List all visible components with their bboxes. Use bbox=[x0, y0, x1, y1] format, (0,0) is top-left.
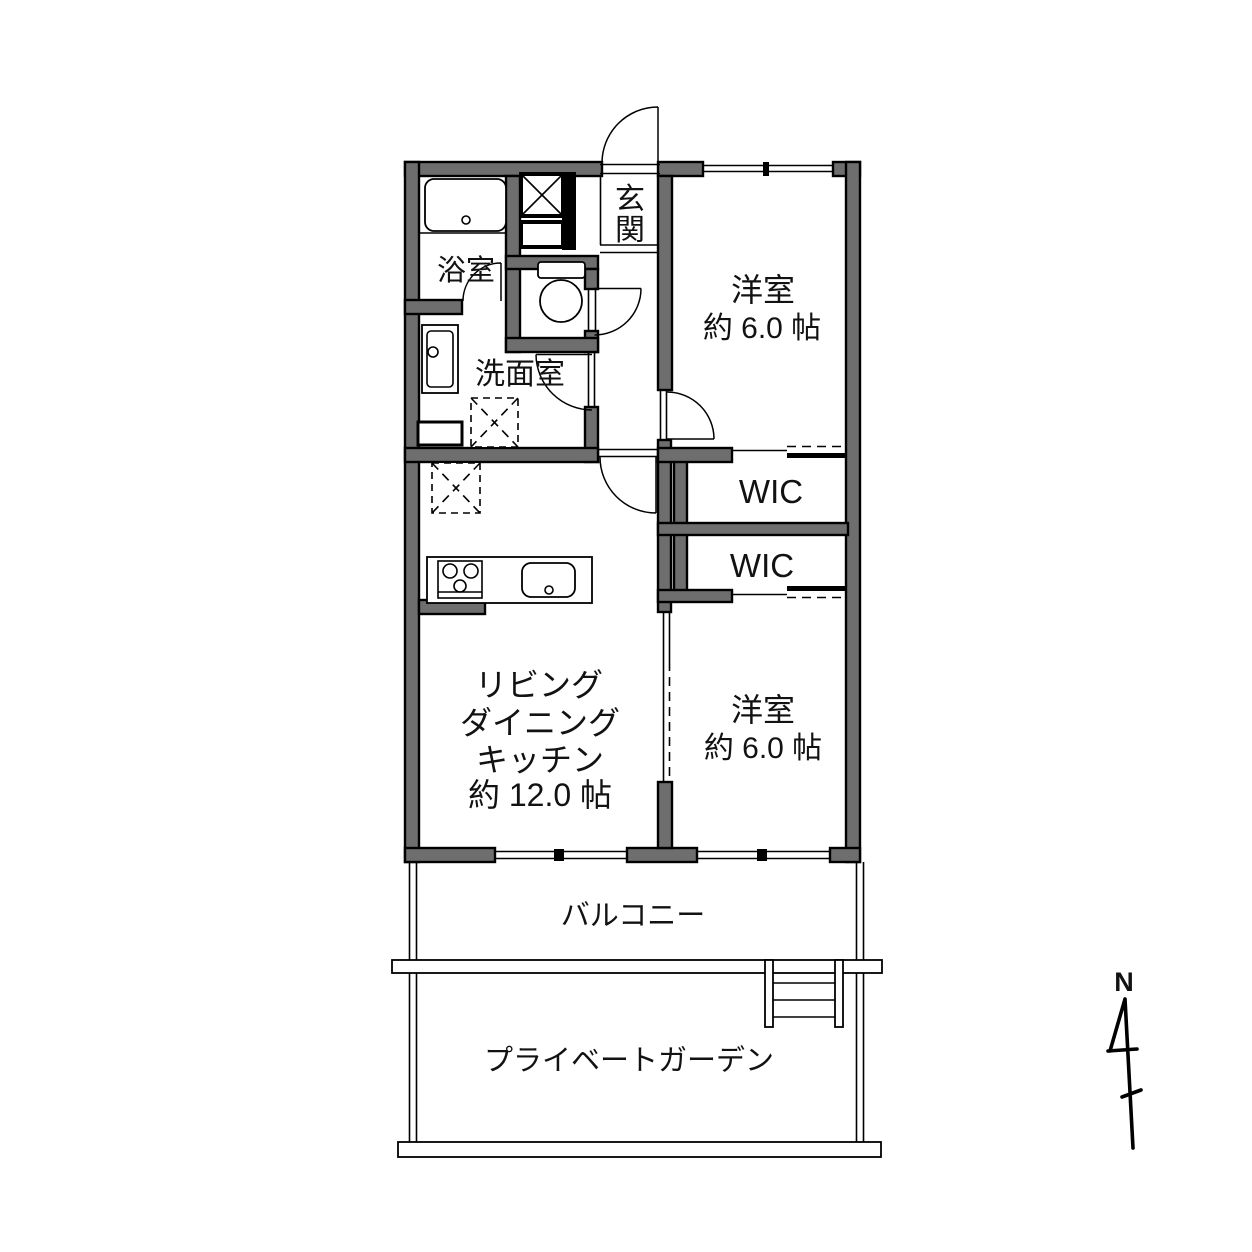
refrigerator-icon bbox=[432, 463, 480, 513]
window-mullion bbox=[757, 849, 767, 861]
bedroom-bottom-size: 約 6.0 帖 bbox=[704, 732, 822, 765]
ldk-label-1: リビング bbox=[475, 667, 603, 703]
bathroom-label: 浴室 bbox=[437, 254, 495, 287]
toilet-icon bbox=[538, 262, 585, 322]
genkan-label-2: 関 bbox=[615, 214, 645, 247]
shoe-cabinet-icon bbox=[521, 222, 563, 247]
bathtub-icon bbox=[420, 179, 506, 233]
garden-bottom-fence bbox=[398, 1142, 881, 1157]
balcony-label: バルコニー bbox=[561, 900, 705, 932]
balcony-railing bbox=[392, 960, 882, 973]
bedroom-bottom-label: 洋室 bbox=[731, 692, 795, 728]
entrance-door-icon bbox=[602, 107, 658, 163]
bedroom-door-icon bbox=[667, 392, 714, 439]
wic1-label: WIC bbox=[739, 473, 803, 510]
ldk-size: 約 12.0 帖 bbox=[468, 777, 612, 813]
window-mullion bbox=[554, 849, 564, 861]
toilet-door-icon bbox=[594, 289, 641, 336]
wic2-label: WIC bbox=[730, 547, 794, 584]
pipe-space-icon bbox=[521, 174, 563, 216]
floor-plan-page: N 玄 関 浴室 洗面室 洋室 約 6.0 帖 WIC WIC リビング ダイニ… bbox=[0, 0, 1252, 1252]
floor-plan: N 玄 関 浴室 洗面室 洋室 約 6.0 帖 WIC WIC リビング ダイニ… bbox=[0, 0, 1252, 1252]
washing-machine-icon bbox=[471, 398, 518, 447]
private-garden-label: プライベートガーデン bbox=[484, 1044, 774, 1077]
window-mullion bbox=[763, 162, 769, 176]
bedroom-top-size: 約 6.0 帖 bbox=[703, 312, 821, 345]
washbasin-icon bbox=[422, 325, 458, 393]
bedroom-top-label: 洋室 bbox=[731, 272, 795, 308]
ldk-label-3: キッチン bbox=[476, 742, 604, 778]
kitchen-counter bbox=[427, 557, 592, 603]
ldk-door-icon bbox=[600, 457, 656, 513]
room-labels: 玄 関 浴室 洗面室 洋室 約 6.0 帖 WIC WIC リビング ダイニング… bbox=[437, 183, 822, 1077]
ldk-label-2: ダイニング bbox=[460, 705, 620, 741]
north-arrow-icon: N bbox=[1108, 967, 1141, 1148]
storage-cabinet-icon bbox=[418, 422, 462, 445]
kitchen-sink-icon bbox=[522, 563, 575, 597]
washroom-label: 洗面室 bbox=[475, 358, 565, 391]
genkan-label-1: 玄 bbox=[615, 183, 645, 216]
north-label: N bbox=[1114, 967, 1134, 997]
